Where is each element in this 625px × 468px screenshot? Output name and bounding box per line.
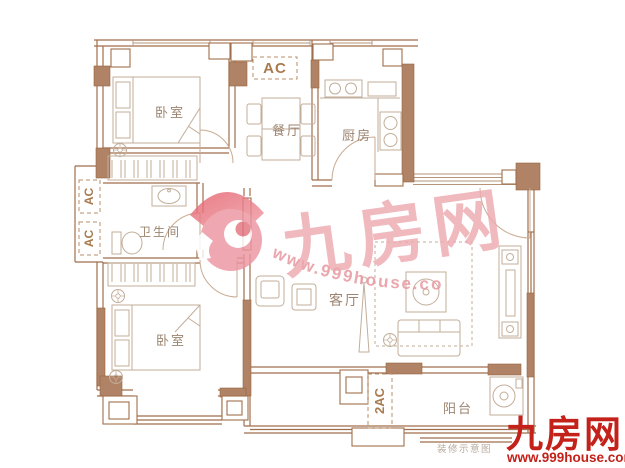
caption: 装修示意图 <box>437 443 492 455</box>
bathroom-sink <box>152 186 186 206</box>
plant-icon-1 <box>112 290 125 303</box>
room-label-bedroom-bottom: 卧室 <box>156 333 186 348</box>
ac-label-left-lower: AC <box>82 230 96 248</box>
room-label-kitchen: 厨房 <box>342 128 372 143</box>
floor-plan-svg: AC AC AC 2AC 卧室 餐厅 厨房 卫生间 卧室 客厅 阳台 九房网 w… <box>0 0 625 468</box>
floor-plan-image: AC AC AC 2AC 卧室 餐厅 厨房 卫生间 卧室 客厅 阳台 九房网 w… <box>0 0 625 468</box>
lamp-icon <box>114 144 127 157</box>
washing-machine <box>490 377 523 415</box>
kitchen-sink <box>320 80 400 98</box>
wardrobe-top <box>108 156 197 180</box>
room-label-dining: 餐厅 <box>272 123 302 138</box>
room-label-bedroom-top: 卧室 <box>155 105 185 120</box>
tv-cabinet <box>499 246 521 338</box>
sofa <box>398 320 460 356</box>
room-label-bathroom: 卫生间 <box>139 225 181 239</box>
armchair <box>256 276 284 306</box>
kitchen-door-arc <box>332 137 375 180</box>
side-table <box>292 284 316 310</box>
bedroom-top-door-arc <box>200 130 233 163</box>
brand: 九房网 www.999house.com <box>506 414 625 465</box>
ac-label-balcony: 2AC <box>372 387 387 414</box>
wardrobe-bottom <box>108 263 195 286</box>
toilet <box>112 232 142 254</box>
kitchen-stove <box>378 98 401 152</box>
brand-name: 九房网 <box>506 414 623 455</box>
watermark-logo-icon <box>190 192 264 271</box>
room-label-living: 客厅 <box>329 292 361 308</box>
plant-icon-3 <box>384 334 397 347</box>
room-label-balcony: 阳台 <box>443 401 473 416</box>
brand-url: www.999house.com <box>506 450 625 465</box>
ac-label-left-upper: AC <box>82 188 96 206</box>
ac-label-top: AC <box>263 60 287 77</box>
